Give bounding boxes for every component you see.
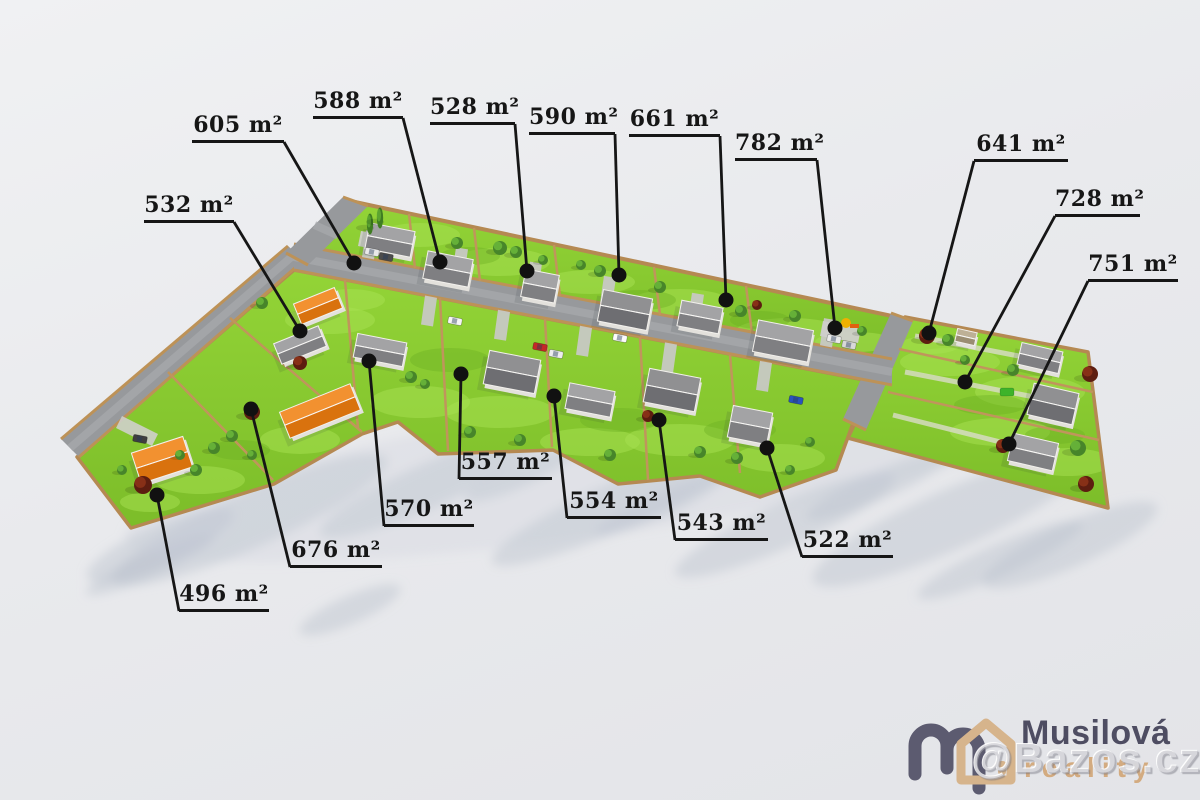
area-label-676: 676 m² (290, 537, 382, 568)
area-label-661: 661 m² (629, 106, 720, 137)
area-label-554: 554 m² (567, 488, 661, 519)
area-label-728: 728 m² (1055, 186, 1140, 217)
bazos-watermark: @Bazos.cz (972, 735, 1200, 783)
plot-marker-dot-532 (293, 324, 308, 339)
plot-marker-dot-782 (828, 321, 843, 336)
area-label-641: 641 m² (974, 131, 1068, 162)
area-label-590: 590 m² (529, 104, 615, 135)
plot-marker-dot-570 (362, 354, 377, 369)
leader-line-590 (615, 134, 619, 275)
area-label-570: 570 m² (384, 496, 474, 527)
area-label-557: 557 m² (459, 449, 552, 480)
plot-marker-dot-588 (433, 255, 448, 270)
plot-marker-dot-522 (760, 441, 775, 456)
leader-line-641 (929, 161, 974, 333)
plot-marker-dot-661 (719, 293, 734, 308)
plot-marker-dot-676 (244, 402, 259, 417)
area-label-532: 532 m² (144, 192, 234, 223)
area-label-543: 543 m² (675, 510, 768, 541)
area-label-496: 496 m² (179, 581, 269, 612)
plot-marker-dot-557 (454, 367, 469, 382)
area-label-751: 751 m² (1088, 251, 1178, 282)
plot-marker-dot-590 (612, 268, 627, 283)
playground-slide (850, 324, 859, 328)
plot-marker-dot-605 (347, 256, 362, 271)
area-label-605: 605 m² (192, 112, 284, 143)
area-label-528: 528 m² (430, 94, 515, 125)
leader-line-661 (720, 136, 726, 300)
plot-marker-dot-554 (547, 389, 562, 404)
plot-marker-dot-728 (958, 375, 973, 390)
plot-marker-dot-496 (150, 488, 165, 503)
area-label-588: 588 m² (313, 88, 403, 119)
green-bench (1000, 388, 1014, 396)
plot-map-image: 532 m²605 m²588 m²528 m²590 m²661 m²782 … (0, 0, 1200, 800)
area-label-522: 522 m² (802, 527, 893, 558)
playground (841, 318, 851, 328)
area-label-782: 782 m² (735, 130, 817, 161)
plot-marker-dot-641 (922, 326, 937, 341)
plot-marker-dot-751 (1002, 437, 1017, 452)
plot-marker-dot-528 (520, 264, 535, 279)
plot-marker-dot-543 (652, 413, 667, 428)
